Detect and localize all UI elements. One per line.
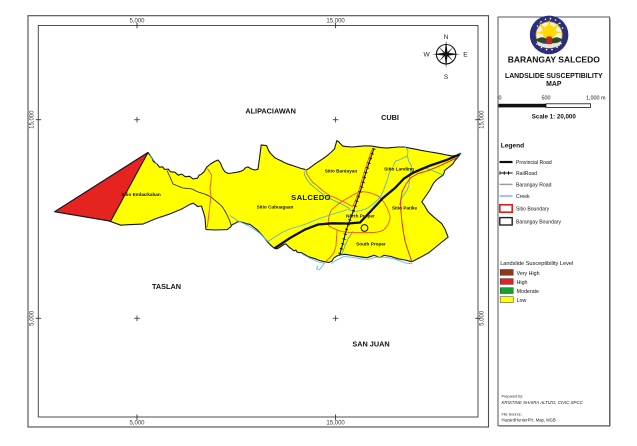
svg-text:Sitio Embarkahan: Sitio Embarkahan	[121, 192, 161, 197]
svg-text:1,000 m: 1,000 m	[586, 96, 606, 102]
svg-text:5,000: 5,000	[129, 421, 145, 427]
svg-text:Sitio Boundary: Sitio Boundary	[516, 207, 550, 213]
svg-text:0: 0	[499, 96, 502, 102]
svg-text:BARANGAY SALCEDO: BARANGAY SALCEDO	[508, 55, 600, 65]
svg-text:MAP: MAP	[546, 81, 562, 88]
svg-text:HazardHunterPH, Map, MGB: HazardHunterPH, Map, MGB	[502, 418, 556, 423]
svg-text:Sitio Patike: Sitio Patike	[392, 205, 418, 210]
svg-text:ALIPACIAWAN: ALIPACIAWAN	[245, 107, 296, 116]
svg-text:E: E	[463, 52, 468, 59]
svg-text:Prepared by:: Prepared by:	[502, 395, 524, 399]
svg-text:S: S	[444, 74, 449, 81]
svg-text:SAN JUAN: SAN JUAN	[352, 340, 389, 349]
svg-text:North Proper: North Proper	[346, 213, 375, 218]
svg-text:Landslide Susceptibility Level: Landslide Susceptibility Level	[500, 261, 573, 267]
svg-text:Sitio Landing: Sitio Landing	[384, 167, 414, 172]
svg-text:SALCEDO: SALCEDO	[291, 193, 331, 202]
svg-text:Barangay Boundary: Barangay Boundary	[516, 219, 561, 225]
svg-text:High: High	[517, 280, 528, 286]
svg-text:Very High: Very High	[517, 271, 540, 277]
svg-text:15,000: 15,000	[30, 110, 36, 129]
svg-text:South Proper: South Proper	[356, 242, 386, 247]
svg-text:N: N	[444, 34, 449, 41]
svg-text:Barangay Road: Barangay Road	[516, 182, 552, 188]
svg-text:LANDSLIDE SUSCEPTIBILITY: LANDSLIDE SUSCEPTIBILITY	[505, 73, 603, 80]
svg-text:Sitio Cabuagaan: Sitio Cabuagaan	[257, 204, 294, 209]
svg-text:KRISTINE SHAIRA ALTIZO, CIVIC: KRISTINE SHAIRA ALTIZO, CIVIC SPCC	[502, 400, 584, 405]
svg-text:CUBI: CUBI	[381, 113, 399, 122]
svg-text:Creek: Creek	[516, 194, 530, 200]
svg-text:5,000: 5,000	[30, 310, 36, 326]
svg-text:15,000: 15,000	[326, 421, 345, 427]
svg-text:Scale 1: 20,000: Scale 1: 20,000	[532, 113, 577, 120]
svg-text:W: W	[424, 52, 431, 59]
svg-text:Provincial Road: Provincial Road	[516, 160, 552, 166]
svg-text:Moderate: Moderate	[517, 289, 539, 295]
svg-text:File Source:: File Source:	[502, 413, 522, 417]
svg-text:Low: Low	[517, 298, 527, 304]
svg-text:500: 500	[542, 96, 551, 102]
svg-text:Sitio Bantayan: Sitio Bantayan	[325, 169, 358, 174]
svg-text:TASLAN: TASLAN	[152, 282, 181, 291]
svg-text:RailRoad: RailRoad	[516, 171, 537, 177]
svg-text:Legend: Legend	[501, 143, 524, 150]
